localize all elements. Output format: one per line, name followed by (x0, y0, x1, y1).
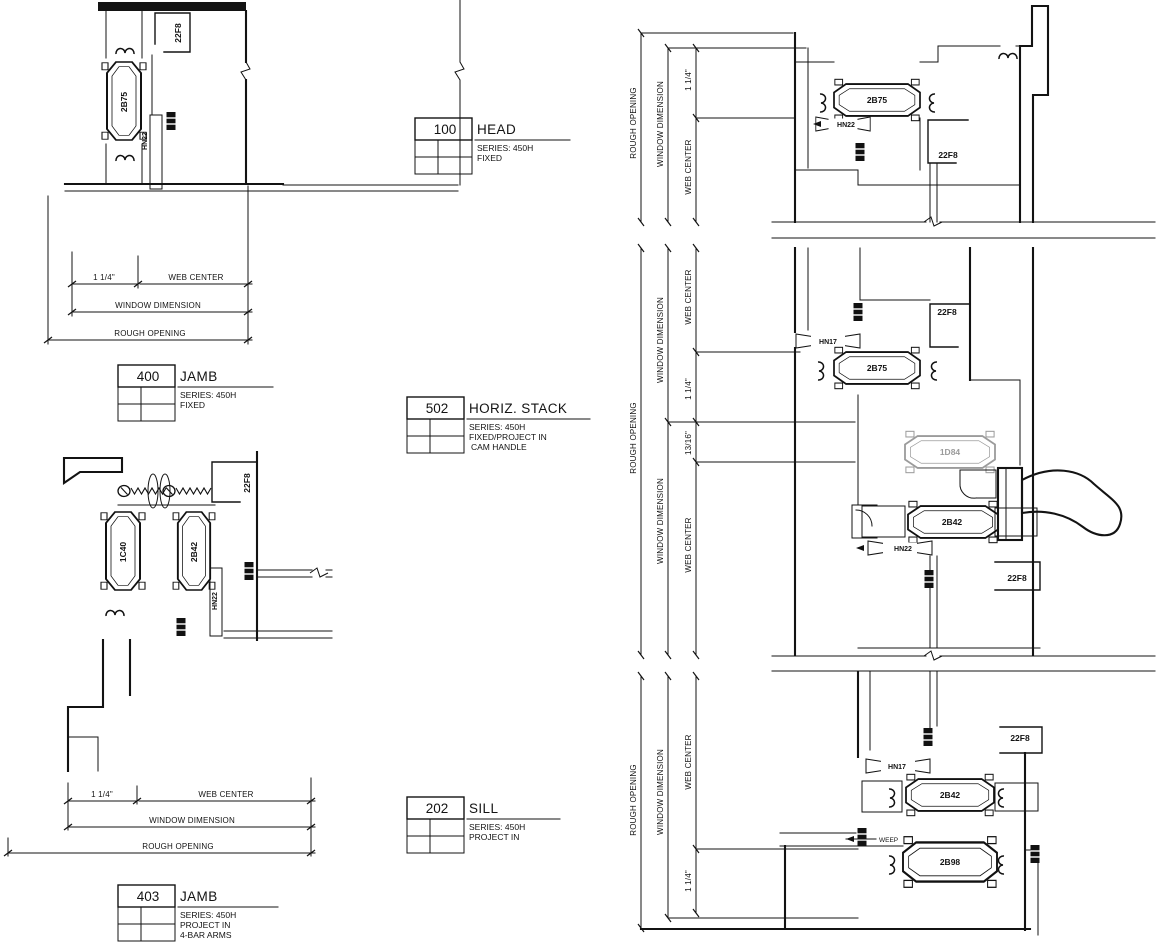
cam-handle (960, 468, 1121, 540)
wall-lines (795, 248, 1033, 655)
detail-number: 502 (426, 401, 449, 416)
frame-lines (668, 672, 1042, 935)
spring-coil (148, 474, 158, 508)
detail-title: SILL (469, 801, 498, 816)
wall-step (64, 458, 122, 483)
dim-1-14: 1 1/4" (684, 378, 693, 400)
dim-web-center: WEB CENTER (684, 269, 693, 324)
dim-window-dimension: WINDOW DIMENSION (656, 478, 665, 564)
wall-lines (641, 672, 1030, 930)
gasket-curl (889, 856, 895, 874)
gasket-curl (999, 53, 1017, 59)
dim-window-dimension: WINDOW DIMENSION (149, 816, 235, 825)
dims-right-section: ROUGH OPENING WINDOW DIMENSION 1 1/4" WE… (629, 29, 858, 932)
fastener-clip (924, 728, 933, 746)
detail-note: SERIES: 450H (180, 910, 236, 920)
dim-rough-opening: ROUGH OPENING (629, 402, 638, 474)
frame-lines (68, 505, 332, 771)
drawing-canvas: 2B75 22F8 HN22 1 1/4" WEB CENTER WINDOW … (0, 0, 1158, 946)
part-label-2B75: 2B75 (867, 95, 888, 105)
wall-head-bar (98, 2, 246, 11)
part-label-22F8: 22F8 (937, 307, 957, 317)
part-label-22F8: 22F8 (1007, 573, 1027, 583)
dim-1-14: 1 1/4" (91, 790, 113, 799)
dim-1-14: 1 1/4" (684, 69, 693, 91)
part-label-HN17: HN17 (819, 339, 837, 346)
part-label-HN17: HN17 (888, 764, 906, 771)
dim-web-center: WEB CENTER (684, 139, 693, 194)
fastener-clip (925, 570, 934, 588)
part-label-HN22: HN22 (837, 122, 855, 129)
frame-lines (808, 248, 1040, 648)
dims-jamb-400: 1 1/4" WEB CENTER WINDOW DIMENSION ROUGH… (44, 186, 252, 344)
title-block-202-sill: 202 SILL SERIES: 450H PROJECT IN (407, 797, 560, 853)
part-label-1D84: 1D84 (940, 447, 961, 457)
part-label-2B75: 2B75 (867, 363, 888, 373)
detail-note: PROJECT IN (469, 832, 519, 842)
section-sill-202: WEEP 22F8 HN17 2B42 2B98 (641, 672, 1042, 935)
gasket-curl (116, 155, 134, 161)
dim-rough-opening: ROUGH OPENING (629, 764, 638, 836)
detail-title: HORIZ. STACK (469, 401, 567, 416)
detail-note: SERIES: 450H (180, 390, 236, 400)
weep-arrow (846, 836, 854, 842)
fastener-clip (858, 828, 867, 846)
fastener-clip (177, 618, 186, 636)
gasket-curl (818, 362, 824, 380)
dim-window-dimension: WINDOW DIMENSION (656, 749, 665, 835)
title-block-403-jamb: 403 JAMB SERIES: 450H PROJECT IN 4-BAR A… (118, 885, 278, 941)
fastener-clip (856, 143, 865, 161)
dim-window-dimension: WINDOW DIMENSION (656, 297, 665, 383)
part-label-HN22: HN22 (894, 546, 912, 553)
part-label-22F8: 22F8 (242, 473, 252, 493)
hinge-strip (150, 115, 162, 189)
fastener-clip (854, 303, 863, 321)
fastener-clip (245, 562, 254, 580)
fastener-clip (167, 112, 176, 130)
part-label-2B98: 2B98 (940, 857, 961, 867)
break-symbol (241, 62, 250, 80)
dim-rough-opening: ROUGH OPENING (114, 329, 186, 338)
dim-1-14: 1 1/4" (93, 273, 115, 282)
detail-title: JAMB (180, 889, 218, 904)
gasket-curl (820, 94, 826, 112)
detail-number: 403 (137, 889, 160, 904)
dims-jamb-403: 1 1/4" WEB CENTER WINDOW DIMENSION ROUGH… (4, 778, 315, 856)
section-head-100: 2B75 HN22 22F8 (795, 6, 1048, 222)
detail-note: FIXED (477, 153, 502, 163)
dim-1-14: 1 1/4" (684, 870, 693, 892)
dim-web-center: WEB CENTER (684, 517, 693, 572)
title-block-502-horiz-stack: 502 HORIZ. STACK SERIES: 450H FIXED/PROJ… (407, 397, 590, 453)
wall-lines (68, 452, 257, 771)
part-label-HN22: HN22 (142, 132, 149, 150)
title-block-400-jamb: 400 JAMB SERIES: 450H FIXED (118, 365, 273, 421)
gasket-curl (931, 362, 937, 380)
frame-lines (795, 46, 1020, 222)
detail-note: 4-BAR ARMS (180, 930, 232, 940)
detail-jamb-403: 1C40 2B42 22F8 HN22 (64, 452, 332, 771)
gasket-curl (929, 94, 935, 112)
section-breaks (772, 217, 1155, 671)
part-label-2B42: 2B42 (940, 790, 961, 800)
dim-rough-opening: ROUGH OPENING (142, 842, 214, 851)
frame-box (862, 781, 902, 812)
detail-note: PROJECT IN (180, 920, 230, 930)
weep-callout: WEEP (846, 836, 898, 844)
wall-lines (795, 6, 1048, 222)
part-label-22F8: 22F8 (173, 23, 183, 43)
dim-web-center: WEB CENTER (198, 790, 253, 799)
detail-note: SERIES: 450H (469, 422, 525, 432)
leader-arrow (813, 121, 821, 127)
detail-number: 202 (426, 801, 449, 816)
part-label-1C40: 1C40 (118, 542, 128, 563)
break-symbol (455, 62, 464, 80)
gasket-curl (998, 856, 1004, 874)
part-label-2B42: 2B42 (942, 517, 963, 527)
detail-note: SERIES: 450H (469, 822, 525, 832)
title-block-100-head: 100 HEAD SERIES: 450H FIXED (415, 118, 570, 174)
gasket-curl (106, 610, 124, 616)
detail-number: 100 (434, 122, 457, 137)
dimension-lines (641, 33, 858, 928)
gasket-curl (889, 789, 895, 807)
part-label-2B75: 2B75 (119, 92, 129, 113)
extension-lines (48, 186, 248, 344)
drawing-sheet: 2B75 22F8 HN22 1 1/4" WEB CENTER WINDOW … (0, 0, 1158, 946)
dim-rough-opening: ROUGH OPENING (629, 87, 638, 159)
detail-note: FIXED/PROJECT IN (469, 432, 547, 442)
fastener-clip (1031, 845, 1040, 863)
leader-arrow (856, 545, 864, 551)
part-label-2B42: 2B42 (189, 542, 199, 563)
detail-number: 400 (137, 369, 160, 384)
part-label-22F8: 22F8 (938, 150, 958, 160)
detail-title: HEAD (477, 122, 516, 137)
detail-jamb-400: 2B75 22F8 HN22 (65, 0, 464, 191)
frame-box (862, 506, 905, 537)
weep-label: WEEP (879, 837, 898, 844)
part-label-HN22: HN22 (212, 592, 219, 610)
break-symbol (924, 217, 942, 226)
part-label-22F8: 22F8 (1010, 733, 1030, 743)
break-symbol (924, 651, 942, 660)
detail-note: FIXED (180, 400, 205, 410)
dim-window-dimension: WINDOW DIMENSION (115, 301, 201, 310)
dim-web-center: WEB CENTER (168, 273, 223, 282)
detail-note: SERIES: 450H (477, 143, 533, 153)
dim-window-dimension: WINDOW DIMENSION (656, 81, 665, 167)
break-symbol (310, 568, 328, 577)
dim-13-16: 13/16" (684, 431, 693, 455)
detail-note: CAM HANDLE (471, 442, 527, 452)
section-horiz-502: 22F8 HN17 2B75 1D84 2B42 HN22 22F8 (795, 248, 1121, 655)
gasket-curl (998, 789, 1004, 807)
dim-web-center: WEB CENTER (684, 734, 693, 789)
detail-title: JAMB (180, 369, 218, 384)
gasket-curl (116, 48, 134, 54)
screw-icon (118, 486, 166, 497)
